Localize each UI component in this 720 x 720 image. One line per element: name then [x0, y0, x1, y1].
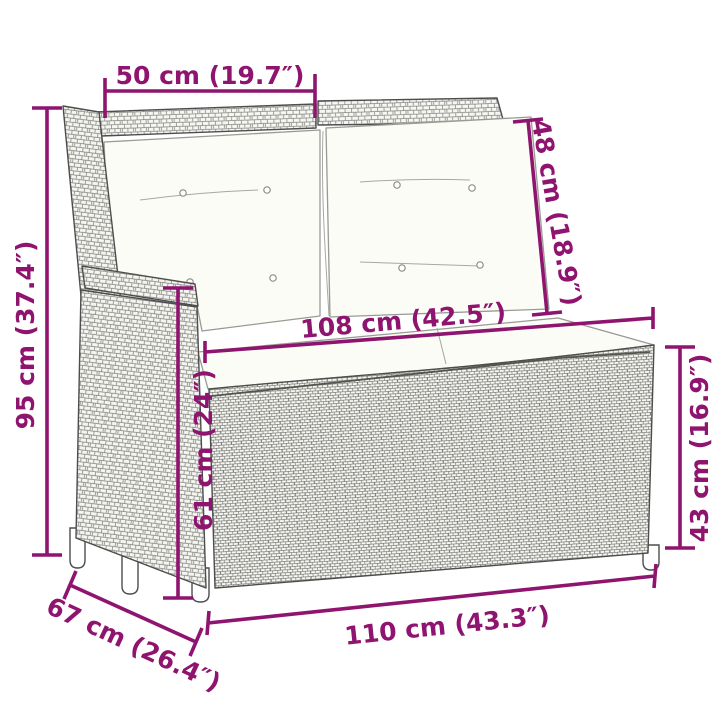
dim-label-depth: 67 cm (26.4″)	[42, 591, 225, 697]
dim-label-armrest-height: 61 cm (24″)	[189, 369, 218, 531]
dim-total-height: 95 cm (37.4″)	[11, 108, 62, 555]
back-cushion-right	[326, 117, 549, 317]
dimension-diagram: 50 cm (19.7″) 95 cm (37.4″) 48 cm (18.9″…	[0, 0, 720, 720]
cushion-button	[469, 185, 475, 191]
cushion-button	[399, 265, 405, 271]
dim-seat-height: 43 cm (16.9″)	[665, 347, 714, 548]
arm-front-panel	[76, 290, 206, 588]
leg-mid-left	[122, 556, 138, 594]
cushion-button	[270, 275, 276, 281]
backrest-rail-left	[95, 104, 316, 136]
dim-label-seat-height: 43 cm (16.9″)	[685, 354, 714, 543]
bench-dimensions-svg: 50 cm (19.7″) 95 cm (37.4″) 48 cm (18.9″…	[0, 0, 720, 720]
bench-illustration	[63, 98, 659, 602]
cushion-button	[394, 182, 400, 188]
dim-label-total-width: 110 cm (43.3″)	[343, 600, 551, 650]
cushion-button	[180, 190, 186, 196]
dim-label-total-height: 95 cm (37.4″)	[11, 241, 40, 430]
cushion-button	[264, 187, 270, 193]
cushion-button	[477, 262, 483, 268]
dim-label-top-width: 50 cm (19.7″)	[116, 61, 305, 90]
